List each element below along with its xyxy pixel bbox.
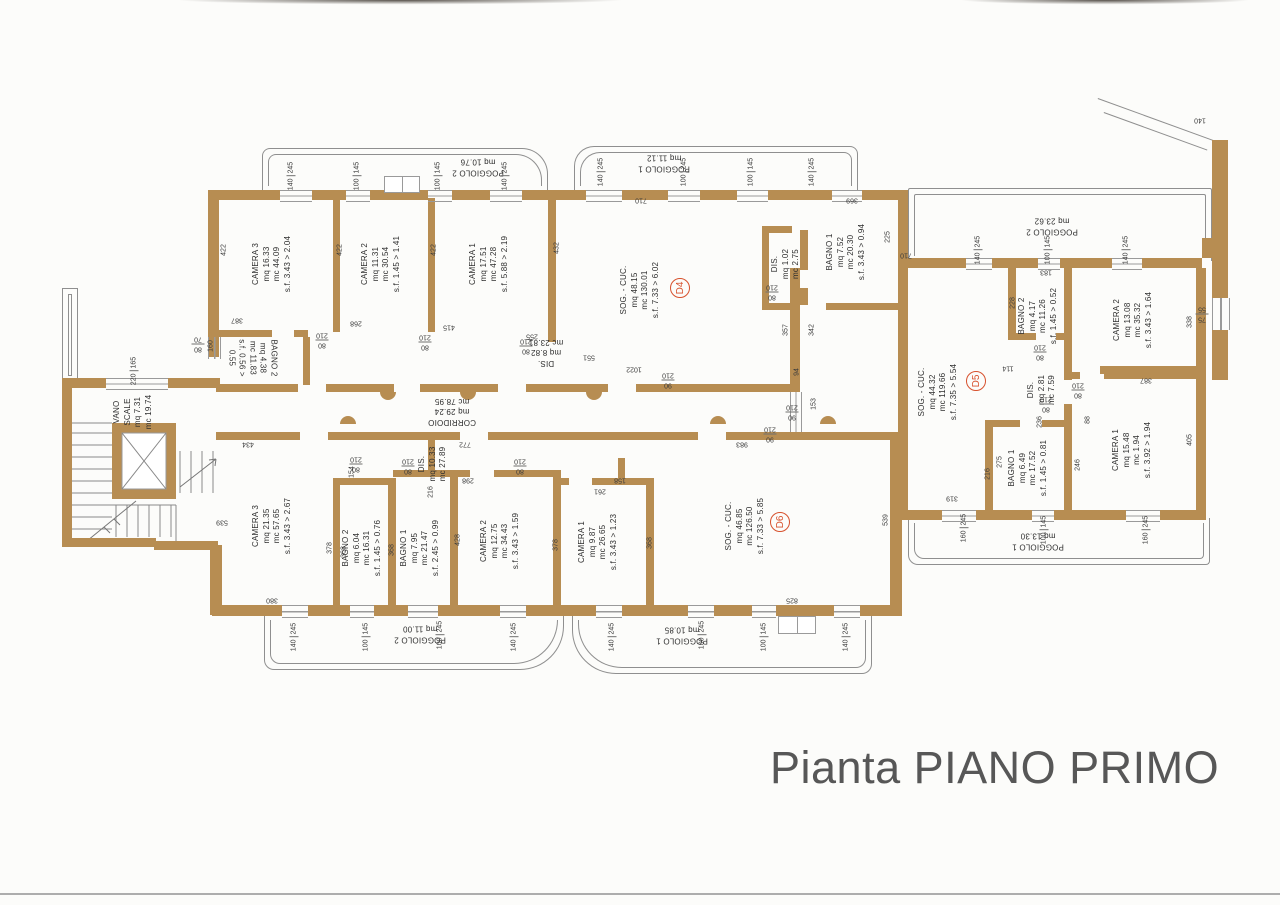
room-label-line: BAGNO 2 (1017, 288, 1028, 344)
dimension-value: 236 (1037, 416, 1044, 428)
room-label-line: s.f. 3.43 > 2.67 (283, 498, 294, 554)
dimension-value: 246 (1075, 459, 1082, 471)
dimension-label: 153 (811, 398, 818, 410)
wall-segment (62, 538, 156, 547)
room-label-d6-camera-2: CAMERA 2mq 12.75mc 34.43s.f. 3.43 > 1.59 (479, 513, 521, 569)
room-label-line: s.f. 3.92 > 1.94 (1143, 422, 1154, 478)
room-label-line: BAGNO 1 (825, 224, 836, 280)
dimension-bar (680, 172, 689, 173)
dimension-label: 710 (635, 197, 647, 204)
wall-segment (494, 470, 560, 477)
dimension-label: 539 (216, 519, 228, 526)
dimension-label: 772 (459, 441, 471, 448)
room-label-line: CAMERA 1 (468, 236, 479, 292)
dimension-value: 160 (1143, 533, 1150, 545)
wall-segment (976, 510, 1032, 520)
dimension-value: 80 (404, 468, 412, 475)
dimension-bar (192, 344, 205, 345)
wall-segment (1212, 140, 1228, 298)
room-label-line: mc 26.65 (598, 514, 609, 570)
room-label-line: BAGNO 1 (1007, 440, 1018, 496)
room-label-d4-camera-3: CAMERA 3mq 16.33mc 44.09s.f. 3.43 > 2.04 (251, 236, 293, 292)
room-label-line: mq 44.32 (927, 364, 938, 420)
room-label-line: POGGIOLO 2 (452, 167, 504, 178)
room-label-line: SOG. - CUC. (619, 262, 630, 318)
room-label-d4-soggiorno-cucina: SOG. - CUC.mq 48.15mc 130.01s.f. 7.33 > … (619, 262, 661, 318)
dimension-value: 539 (883, 514, 890, 526)
room-label-d5-bagno-2: BAGNO 2mq 4.17mc 11.26s.f. 1.45 > 0.52 (1017, 288, 1059, 344)
dimension-label: 100145 (747, 158, 756, 186)
dimension-label: 90210 (786, 404, 799, 421)
dimension-value: 319 (946, 495, 958, 502)
room-label-line: mq 13.30 (1012, 530, 1064, 541)
dimension-value: 100 (699, 638, 706, 650)
room-label-d5-camera-2: CAMERA 2mq 13.08mc 35.32s.f. 3.43 > 1.64 (1112, 292, 1154, 348)
room-label-line: mc 17.52 (1028, 440, 1039, 496)
wall-segment (1060, 258, 1112, 268)
dimension-value: 210 (419, 334, 431, 341)
scan-artifact-top (130, 0, 670, 6)
dimension-value: 422 (337, 244, 344, 256)
dimension-value: 825 (786, 597, 798, 604)
room-label-line: 0.55 (226, 339, 237, 377)
wall-segment (420, 384, 498, 392)
room-label-line: mc 21.47 (420, 520, 431, 576)
wall-segment (636, 384, 792, 392)
dimension-value: 80 (318, 342, 326, 349)
dimension-value: 80 (1074, 392, 1082, 399)
room-label-d5-poggiolo-2: POGGIOLO 2mq 23.62 (1026, 215, 1078, 236)
dimension-label: 80210 (766, 284, 779, 301)
dimension-value: 228 (1010, 297, 1017, 309)
dimension-label: 100245 (680, 158, 689, 186)
room-label-line: mc 20.30 (846, 224, 857, 280)
room-label-vano-scale: VANOSCALEmq 7.31mc 19.74 (112, 395, 154, 430)
dimension-label: 88 (1085, 416, 1092, 424)
wall-segment (154, 541, 218, 550)
dimension-bar (960, 528, 969, 529)
dimension-value: 432 (554, 242, 561, 254)
room-label-line: s.f. 3.43 > 1.64 (1144, 292, 1155, 348)
dimension-bar (362, 637, 371, 638)
room-label-line: mq 10.33 (428, 447, 439, 482)
scan-artifact-bottom (0, 893, 1280, 895)
wall-segment (326, 384, 394, 392)
wall-segment (438, 605, 500, 616)
room-label-line: s.f. 7.33 > 6.02 (651, 262, 662, 318)
dimension-label: 7555 (1196, 306, 1209, 323)
room-label-line: CAMERA 2 (360, 236, 371, 292)
window (688, 605, 714, 618)
dimension-value: 378 (327, 542, 334, 554)
room-label-d5-soggiorno-cucina: SOG. - CUC.mq 44.32mc 119.66s.f. 7.35 > … (917, 364, 959, 420)
dimension-bar (766, 292, 779, 293)
wall-segment (548, 198, 556, 342)
dimension-value: 405 (1187, 434, 1194, 446)
room-label-line: s.f. 3.43 > 1.59 (511, 513, 522, 569)
dimension-value: 551 (583, 354, 595, 361)
window (428, 190, 452, 202)
dimension-bar (608, 637, 617, 638)
dimension-value: 245 (502, 162, 509, 174)
window (350, 605, 374, 618)
dimension-label: 357 (783, 324, 790, 336)
room-label-line: mq 23.62 (1026, 215, 1078, 226)
wall-segment (762, 226, 792, 233)
dimension-label: 140245 (1122, 236, 1131, 264)
dimension-value: 80 (352, 466, 360, 473)
room-label-line: mc 11.83 (247, 339, 258, 377)
room-label-d4-dis: DIS.mq 8.82mc 23.81 (529, 336, 564, 368)
wall-segment (303, 337, 310, 385)
wall-segment (216, 384, 298, 392)
dimension-value: 220 (131, 374, 138, 386)
dimension-label: 236 (1037, 416, 1044, 428)
room-label-line: mc 1.94 (1132, 422, 1143, 478)
dimension-bar (764, 434, 777, 435)
room-label-line: mq 21.35 (261, 498, 272, 554)
room-label-line: mq 29.24 (428, 406, 476, 417)
room-label-line: mq 17.51 (478, 236, 489, 292)
room-label-line: mc 34.43 (500, 513, 511, 569)
dimension-label: 80210 (1034, 344, 1047, 361)
wall-segment (1072, 372, 1080, 379)
room-label-line: mq 6.04 (351, 520, 362, 576)
dimension-value: 261 (594, 488, 606, 495)
wall-segment (1042, 420, 1065, 427)
room-label-line: mc 19.74 (144, 395, 155, 430)
dimension-value: 415 (443, 324, 455, 331)
room-label-line: mq 10.76 (452, 156, 504, 167)
balcony-outline-inner (578, 620, 866, 668)
wall-segment (860, 605, 902, 616)
dimension-value: 298 (462, 477, 474, 484)
dimension-value: 210 (402, 458, 414, 465)
room-label-d6-bagno-1: BAGNO 1mq 7.95mc 21.47s.f. 2.45 > 0.99 (399, 520, 441, 576)
dimension-label: 268 (350, 320, 362, 327)
dimension-label: 298 (462, 477, 474, 484)
dimension-label: 100145 (434, 162, 443, 190)
dimension-bar (436, 635, 445, 636)
dimension-value: 210 (764, 426, 776, 433)
scan-artifact-top (930, 0, 1280, 6)
dimension-value: 342 (809, 324, 816, 336)
dimension-value: 338 (1187, 316, 1194, 328)
dimension-value: 80 (522, 348, 530, 355)
dimension-bar (808, 172, 817, 173)
room-label-line: DIS. (1026, 375, 1037, 405)
planter (384, 176, 420, 193)
dimension-value: 140 (809, 175, 816, 187)
dimension-value: 140 (511, 640, 518, 652)
dimension-value: 100 (761, 640, 768, 652)
dimension-value: 387 (1140, 377, 1152, 384)
dimension-value: 245 (843, 623, 850, 635)
dimension-label: 100145 (362, 623, 371, 651)
dimension-label: 90210 (662, 372, 675, 389)
dimension-value: 145 (435, 162, 442, 174)
dimension-value: 145 (1041, 516, 1048, 528)
dimension-value: 378 (553, 539, 560, 551)
dimension-value: 140 (1194, 117, 1206, 124)
dimension-value: 145 (761, 623, 768, 635)
dimension-label: 80210 (350, 456, 363, 473)
dimension-label: 378 (553, 539, 560, 551)
dimension-label: 369 (846, 197, 858, 204)
room-label-line: s.f. 2.45 > 0.99 (431, 520, 442, 576)
room-label-line: mq 6.49 (1017, 440, 1028, 496)
wall-segment (1202, 238, 1212, 258)
dimension-bar (662, 380, 675, 381)
dimension-value: 245 (975, 236, 982, 248)
window (752, 605, 776, 618)
room-label-line: CAMERA 3 (251, 498, 262, 554)
window (737, 190, 768, 202)
room-label-line: mc 44.09 (272, 236, 283, 292)
dimension-value: 140 (598, 175, 605, 187)
dimension-value: 387 (231, 317, 243, 324)
room-label-line: mq 12.75 (489, 513, 500, 569)
balcony-outline (62, 288, 78, 382)
room-label-line: mq 8.82 (529, 347, 564, 358)
room-label-line: mc 126.50 (745, 498, 756, 554)
dimension-value: 210 (514, 458, 526, 465)
dimension-bar (974, 250, 983, 251)
wall-segment (553, 470, 561, 605)
dimension-bar (1072, 390, 1085, 391)
wall-segment (622, 605, 688, 616)
dimension-bar (597, 172, 606, 173)
dimension-bar (842, 637, 851, 638)
dimension-value: 183 (1040, 269, 1052, 276)
room-label-line: SOG. - CUC. (724, 498, 735, 554)
wall-bump (820, 416, 836, 424)
dimension-bar (760, 637, 769, 638)
dimension-label: 140245 (501, 162, 510, 190)
wall-segment (488, 432, 698, 440)
room-label-d6-dis: DIS.mq 10.33mc 27.89 (417, 447, 449, 482)
dimension-value: 710 (900, 252, 912, 259)
room-label-line: BAGNO 2 (268, 339, 279, 377)
dimension-label: 378 (327, 542, 334, 554)
dimension-bar (747, 172, 756, 173)
room-label-line: mc 11.26 (1038, 288, 1049, 344)
room-label-line: mq 48.15 (629, 262, 640, 318)
window (834, 605, 860, 618)
dimension-value: 145 (354, 162, 361, 174)
dimension-label: 1022 (626, 366, 642, 373)
room-label-line: mq 1.02 (781, 249, 792, 279)
wall-bump (710, 416, 726, 424)
dimension-label: 368 (389, 544, 396, 556)
dimension-bar (1122, 250, 1131, 251)
window (408, 605, 438, 618)
dimension-label: 160245 (960, 514, 969, 542)
dimension-label: 80210 (402, 458, 415, 475)
dimension-label: 422 (337, 244, 344, 256)
dimension-label: 160245 (1142, 516, 1151, 544)
dimension-value: 55 (1198, 306, 1206, 313)
room-label-d6-camera-1: CAMERA 1mq 9.87mc 26.65s.f. 3.43 > 1.23 (577, 514, 619, 570)
wall-segment (1142, 258, 1202, 268)
dimension-value: 140 (288, 179, 295, 191)
dimension-label: 368 (647, 537, 654, 549)
wall-segment (1064, 372, 1072, 380)
room-label-line: mc 16.31 (362, 520, 373, 576)
dimension-label: 160 (208, 340, 215, 352)
dimension-label: 368 (341, 546, 348, 558)
wall-segment (216, 330, 272, 337)
dimension-value: 90 (664, 382, 672, 389)
room-label-line: VANO (112, 395, 123, 430)
dimension-value: 210 (316, 332, 328, 339)
room-label-line: s.f. 3.43 > 0.94 (857, 224, 868, 280)
window (490, 190, 522, 202)
dimension-label: 422 (221, 244, 228, 256)
room-label-line: mc 27.89 (438, 447, 449, 482)
dimension-value: 100 (435, 179, 442, 191)
dimension-label: 80210 (520, 338, 533, 355)
dimension-label: 183 (1040, 269, 1052, 276)
dimension-label: 319 (946, 495, 958, 502)
room-label-line: BAGNO 1 (399, 520, 410, 576)
dimension-value: 710 (635, 197, 647, 204)
dimension-label: 405 (1187, 434, 1194, 446)
dimension-label: 539 (883, 514, 890, 526)
dimension-label: 80210 (316, 332, 329, 349)
dimension-label: 8070 (192, 336, 205, 353)
wall-segment (62, 378, 72, 546)
window (500, 605, 526, 618)
wall-segment (1160, 510, 1206, 520)
dimension-value: 90 (766, 436, 774, 443)
window (280, 190, 312, 202)
dimension-value: 100 (363, 640, 370, 652)
window (586, 190, 622, 202)
room-label-line: SOG. - CUC. (917, 364, 928, 420)
wall-segment (700, 190, 737, 200)
dimension-label: 100145 (760, 623, 769, 651)
dimension-label: 100145 (353, 162, 362, 190)
window (346, 190, 370, 202)
wall-segment (908, 258, 966, 268)
room-label-line: mc 78.95 (428, 395, 476, 406)
room-label-line: mc 47.28 (489, 236, 500, 292)
dimension-value: 245 (699, 621, 706, 633)
dimension-value: 100 (354, 179, 361, 191)
wall-segment (992, 258, 1038, 268)
room-label-d5-poggiolo-1: POGGIOLO 1mq 13.30 (1012, 530, 1064, 551)
room-label-line: mq 46.85 (734, 498, 745, 554)
dimension-label: 140245 (842, 623, 851, 651)
dimension-value: 368 (389, 544, 396, 556)
dimension-label: 94 (794, 368, 801, 376)
window (668, 190, 700, 202)
room-label-d4-camera-2: CAMERA 2mq 11.31mc 30.54s.f. 1.45 > 1.41 (360, 236, 402, 292)
dimension-label: 216 (985, 468, 992, 480)
room-label-line: mc 130.01 (640, 262, 651, 318)
wall-segment (308, 605, 350, 616)
room-label-line: DIS. (529, 357, 564, 368)
dimension-value: 75 (1198, 316, 1206, 323)
dimension-value: 380 (266, 597, 278, 604)
room-label-line: s.f. 1.45 > 0.52 (1049, 288, 1060, 344)
wall-segment (452, 190, 490, 200)
dimension-label: 140245 (287, 162, 296, 190)
dimension-bar (1142, 530, 1151, 531)
dimension-value: 114 (1002, 365, 1013, 372)
wall-segment (714, 605, 752, 616)
wall-segment (328, 432, 460, 440)
room-label-line: mq 13.08 (1122, 292, 1133, 348)
balcony-outline (572, 615, 872, 674)
room-label-line: s.f. 1.45 > 1.41 (392, 236, 403, 292)
wall-segment (794, 190, 832, 200)
dimension-bar (316, 340, 329, 341)
floor-plan-page: Pianta PIANO PRIMO CAMERA 3mq 16.33mc 44… (0, 0, 1280, 905)
dimension-label: 80210 (514, 458, 527, 475)
dimension-bar (1040, 404, 1053, 405)
dimension-bar (786, 412, 799, 413)
dimension-value: 80 (1042, 406, 1050, 413)
wall-segment (212, 605, 282, 616)
dimension-value: 368 (341, 546, 348, 558)
dimension-label: 228 (1010, 297, 1017, 309)
room-label-line: s.f. 7.35 > 5.54 (949, 364, 960, 420)
dimension-value: 80 (421, 344, 429, 351)
planter (778, 616, 816, 634)
dimension-label: 140245 (510, 623, 519, 651)
dimension-value: 140 (975, 253, 982, 265)
dimension-bar (130, 371, 139, 372)
dimension-value: 245 (291, 623, 298, 635)
apartment-badge-d6: D6 (770, 512, 790, 532)
wall-segment (776, 605, 834, 616)
dimension-value: 140 (291, 640, 298, 652)
dimension-value: 165 (131, 357, 138, 369)
wall-segment (1212, 330, 1228, 380)
dimension-value: 145 (1045, 236, 1052, 248)
wall-bump (380, 392, 396, 400)
room-label-line: s.f. 1.45 > 0.76 (373, 520, 384, 576)
dimension-label: 90210 (764, 426, 777, 443)
dimension-value: 1022 (626, 366, 642, 373)
dimension-label: 140245 (597, 158, 606, 186)
window (1212, 298, 1230, 330)
dimension-label: 434 (242, 441, 254, 448)
wall-segment (553, 478, 569, 485)
dimension-value: 140 (843, 640, 850, 652)
dimension-value: 94 (794, 368, 801, 376)
wall-segment (333, 478, 391, 485)
room-label-line: mc 119.66 (938, 364, 949, 420)
room-label-d4-bagno-2: BAGNO 2mq 4.38mc 11.83s.f. 0.56 >0.55 (226, 339, 279, 377)
room-label-corridoio: CORRIDOIOmq 29.24mc 78.95 (428, 395, 476, 427)
dimension-label: 825 (786, 597, 798, 604)
dimension-value: 245 (961, 514, 968, 526)
room-label-d4-camera-1: CAMERA 1mq 17.51mc 47.28s.f. 5.88 > 2.19 (468, 236, 510, 292)
dimension-value: 422 (431, 244, 438, 256)
dimension-value: 245 (1123, 236, 1130, 248)
dimension-bar (520, 346, 533, 347)
dimension-label: 428 (455, 534, 462, 546)
wall-segment (800, 288, 808, 305)
dimension-value: 140 (1123, 253, 1130, 265)
room-label-line: mc 57.65 (272, 498, 283, 554)
dimension-value: 100 (681, 175, 688, 187)
wall-segment (333, 198, 340, 332)
dimension-bar (434, 176, 443, 177)
